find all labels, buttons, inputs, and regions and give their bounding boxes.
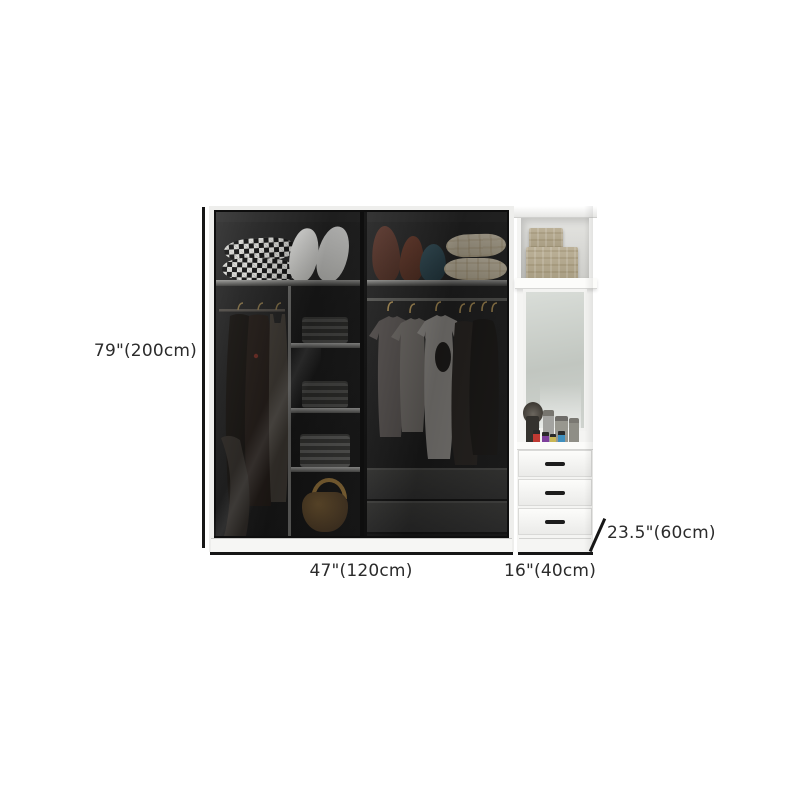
height-dimension-label: 79"(200cm) <box>55 341 197 361</box>
cabinet-drawer <box>518 450 592 477</box>
side-cabinet <box>517 206 593 552</box>
side-width-dimension-line <box>518 552 593 555</box>
storage-box-small <box>529 228 563 248</box>
cabinet-drawer <box>518 479 592 506</box>
wardrobe-plinth <box>211 538 512 552</box>
depth-dimension-label: 23.5"(60cm) <box>607 523 716 543</box>
perfume-bottle <box>569 418 579 444</box>
width-dimension-line <box>210 552 513 555</box>
width-dimension-label: 47"(120cm) <box>261 561 461 581</box>
wardrobe <box>209 206 514 552</box>
cabinet-counter <box>517 442 593 450</box>
cabinet-plinth <box>519 538 591 552</box>
sliding-glass-door-right <box>362 210 509 538</box>
cabinet-open-shelf <box>521 218 589 280</box>
drawer-handle <box>545 520 565 524</box>
drawer-handle <box>545 462 565 466</box>
cabinet-crown <box>514 206 597 218</box>
cabinet-drawer <box>518 508 592 535</box>
height-dimension-line <box>202 207 205 548</box>
cabinet-ledge <box>515 278 597 289</box>
sliding-glass-door-left <box>214 210 362 538</box>
product-image: 79"(200cm) 47"(120cm) 16"(40cm) 23.5"(60… <box>0 0 800 800</box>
storage-box-large <box>526 247 578 280</box>
side-width-dimension-label: 16"(40cm) <box>494 561 606 581</box>
drawer-handle <box>545 491 565 495</box>
